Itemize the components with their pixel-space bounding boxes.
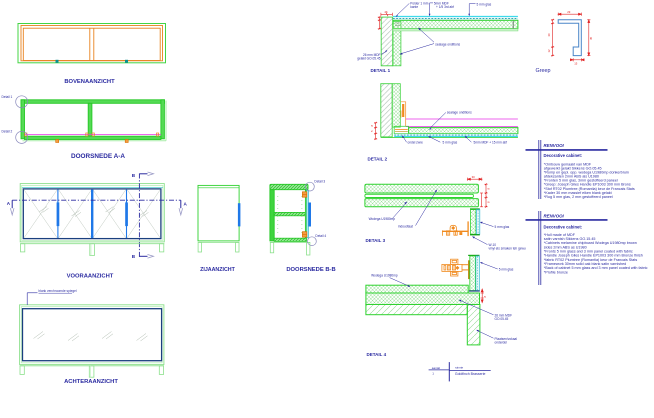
svg-text:onderdel: onderdel (495, 341, 508, 345)
svg-text:5 mm glas: 5 mm glas (443, 141, 458, 145)
svg-text:DETAIL 4: DETAIL 4 (367, 352, 387, 357)
svg-text:ZIJAANZICHT: ZIJAANZICHT (200, 267, 235, 273)
svg-text:sealage onditions: sealage onditions (435, 42, 460, 46)
svg-text:Detail 1: Detail 1 (2, 95, 13, 99)
svg-text:RENVOOI: RENVOOI (544, 214, 565, 219)
svg-text:5 mm glas: 5 mm glas (477, 2, 492, 6)
svg-text:Decorative cabinet:: Decorative cabinet: (544, 153, 583, 158)
svg-text:30: 30 (547, 33, 551, 37)
svg-text:indoudtaat: indoudtaat (398, 224, 413, 228)
svg-text:blank verchroomde spiegel: blank verchroomde spiegel (39, 289, 77, 293)
svg-text:Wodega U1980mp: Wodega U1980mp (371, 274, 398, 278)
svg-text:ruimte: ruimte (455, 366, 464, 370)
svg-text:DOORSNEDE B-B: DOORSNEDE B-B (286, 267, 335, 273)
svg-text:DETAIL 1: DETAIL 1 (371, 68, 391, 73)
svg-text:12: 12 (547, 49, 551, 53)
svg-text:Goldfinch Brasserie: Goldfinch Brasserie (455, 372, 486, 376)
svg-text:5mm MDF + 15 mm abf: 5mm MDF + 15 mm abf (474, 141, 508, 145)
svg-text:DETAIL 3: DETAIL 3 (366, 238, 386, 243)
svg-text:45: 45 (589, 36, 593, 40)
svg-text:15: 15 (574, 62, 578, 66)
svg-text:Decorative cabinet:: Decorative cabinet: (544, 225, 583, 230)
svg-text:BOVENAANZICHT: BOVENAANZICHT (64, 79, 115, 85)
svg-text:ACHTERAANZICHT: ACHTERAANZICHT (64, 379, 118, 385)
svg-text:sealage onditions: sealage onditions (447, 111, 472, 115)
svg-text:ondel zwre: ondel zwre (408, 141, 424, 145)
svg-text:VOORAANZICHT: VOORAANZICHT (67, 274, 114, 280)
svg-text:kante: kante (410, 5, 418, 9)
svg-text:5 mm glas: 5 mm glas (495, 225, 510, 229)
svg-text:vinyl els smaken teh gewu: vinyl els smaken teh gewu (489, 247, 526, 251)
svg-text:gelakt GO.05.45: gelakt GO.05.45 (357, 57, 380, 61)
svg-text:Detail 3: Detail 3 (314, 180, 325, 184)
svg-text:aantal: aantal (432, 366, 441, 370)
svg-text:Detail 2: Detail 2 (2, 130, 13, 134)
svg-text:Greep: Greep (536, 68, 551, 74)
svg-text:DOORSNEDE A-A: DOORSNEDE A-A (71, 153, 125, 160)
svg-text:GO.05.45: GO.05.45 (495, 317, 509, 321)
svg-text:Wodega U1980mp: Wodega U1980mp (369, 217, 396, 221)
svg-text:*Profile bronze: *Profile bronze (544, 270, 568, 274)
svg-text:30: 30 (472, 175, 476, 179)
svg-text:5 mm glas: 5 mm glas (499, 268, 514, 272)
svg-text:RENVOOI: RENVOOI (544, 143, 565, 148)
svg-text:29: 29 (567, 10, 571, 14)
svg-text:+ 1/5 3rd abf: + 1/5 3rd abf (436, 5, 454, 9)
svg-text:Detail 4: Detail 4 (315, 234, 326, 238)
svg-text:*Rug 5 mm glas, 2 mm gestoffee: *Rug 5 mm glas, 2 mm gestoffeerd paneel (544, 195, 613, 199)
svg-text:DETAIL 2: DETAIL 2 (368, 157, 388, 162)
svg-text:26: 26 (385, 10, 389, 14)
